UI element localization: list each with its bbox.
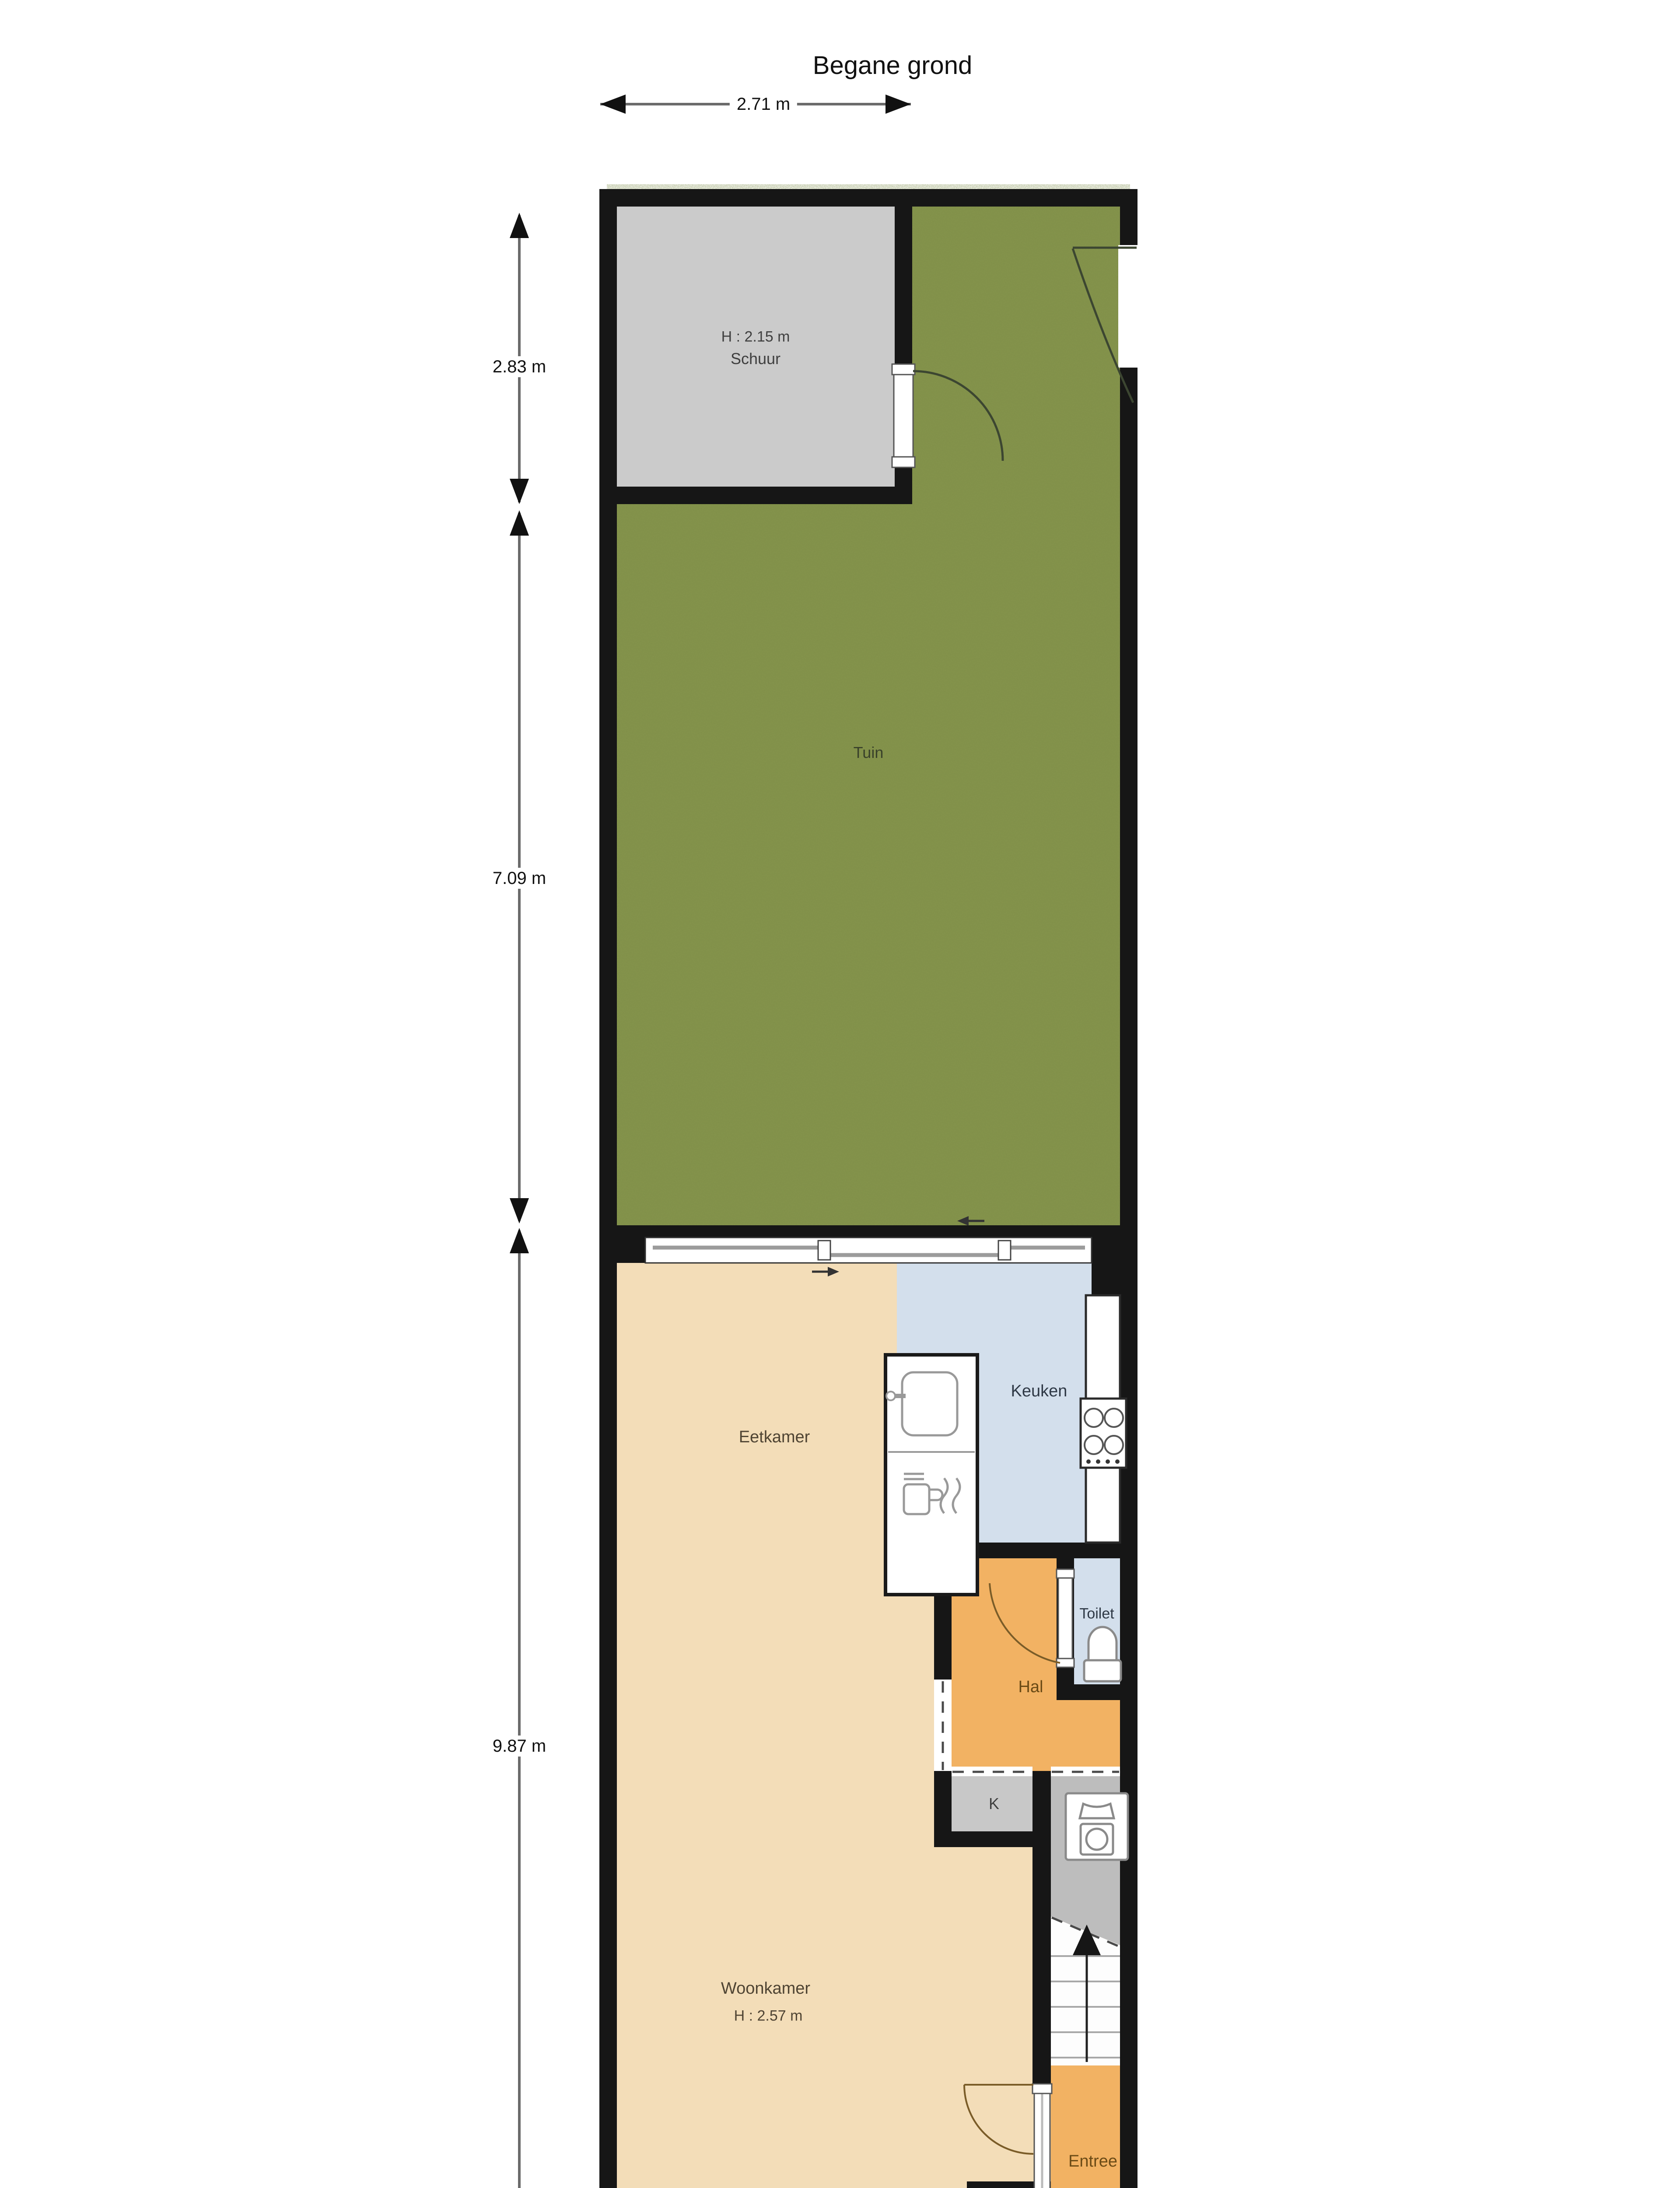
kitchen-counter: [1081, 1295, 1126, 1543]
room-label-keuken: Keuken: [1011, 1382, 1067, 1401]
room-label-toilet: Toilet: [1079, 1606, 1114, 1622]
room-label-tuin: Tuin: [854, 744, 884, 761]
dim-schuur-depth: 2.83 m: [486, 356, 553, 377]
floorplan-page: Begane grond 2.71 m 2.83 m 7.09 m 9.87 m…: [0, 0, 1680, 2188]
room-label-woonkamer-height: H : 2.57 m: [734, 2008, 803, 2024]
room-label-schuur-height: H : 2.15 m: [721, 329, 790, 345]
room-label-entree: Entree: [1068, 2153, 1117, 2171]
floorplan-drawing: [0, 0, 1680, 2188]
page-title: Begane grond: [813, 52, 972, 80]
dim-tuin-depth: 7.09 m: [486, 868, 553, 889]
washing-machine-icon: [1066, 1793, 1128, 1860]
room-label-woonkamer: Woonkamer: [721, 1980, 810, 1998]
rear-window-band: [645, 1238, 1092, 1263]
room-label-eetkamer: Eetkamer: [739, 1428, 810, 1447]
kitchen-island: [885, 1355, 977, 1595]
room-label-hal: Hal: [1018, 1678, 1043, 1697]
toilet-icon: [1084, 1627, 1121, 1681]
room-label-kast: K: [989, 1795, 999, 1813]
room-label-schuur: Schuur: [731, 350, 780, 368]
dim-house-depth: 9.87 m: [486, 1736, 553, 1757]
stove-icon: [1081, 1399, 1126, 1468]
dim-top: 2.71 m: [730, 94, 797, 115]
